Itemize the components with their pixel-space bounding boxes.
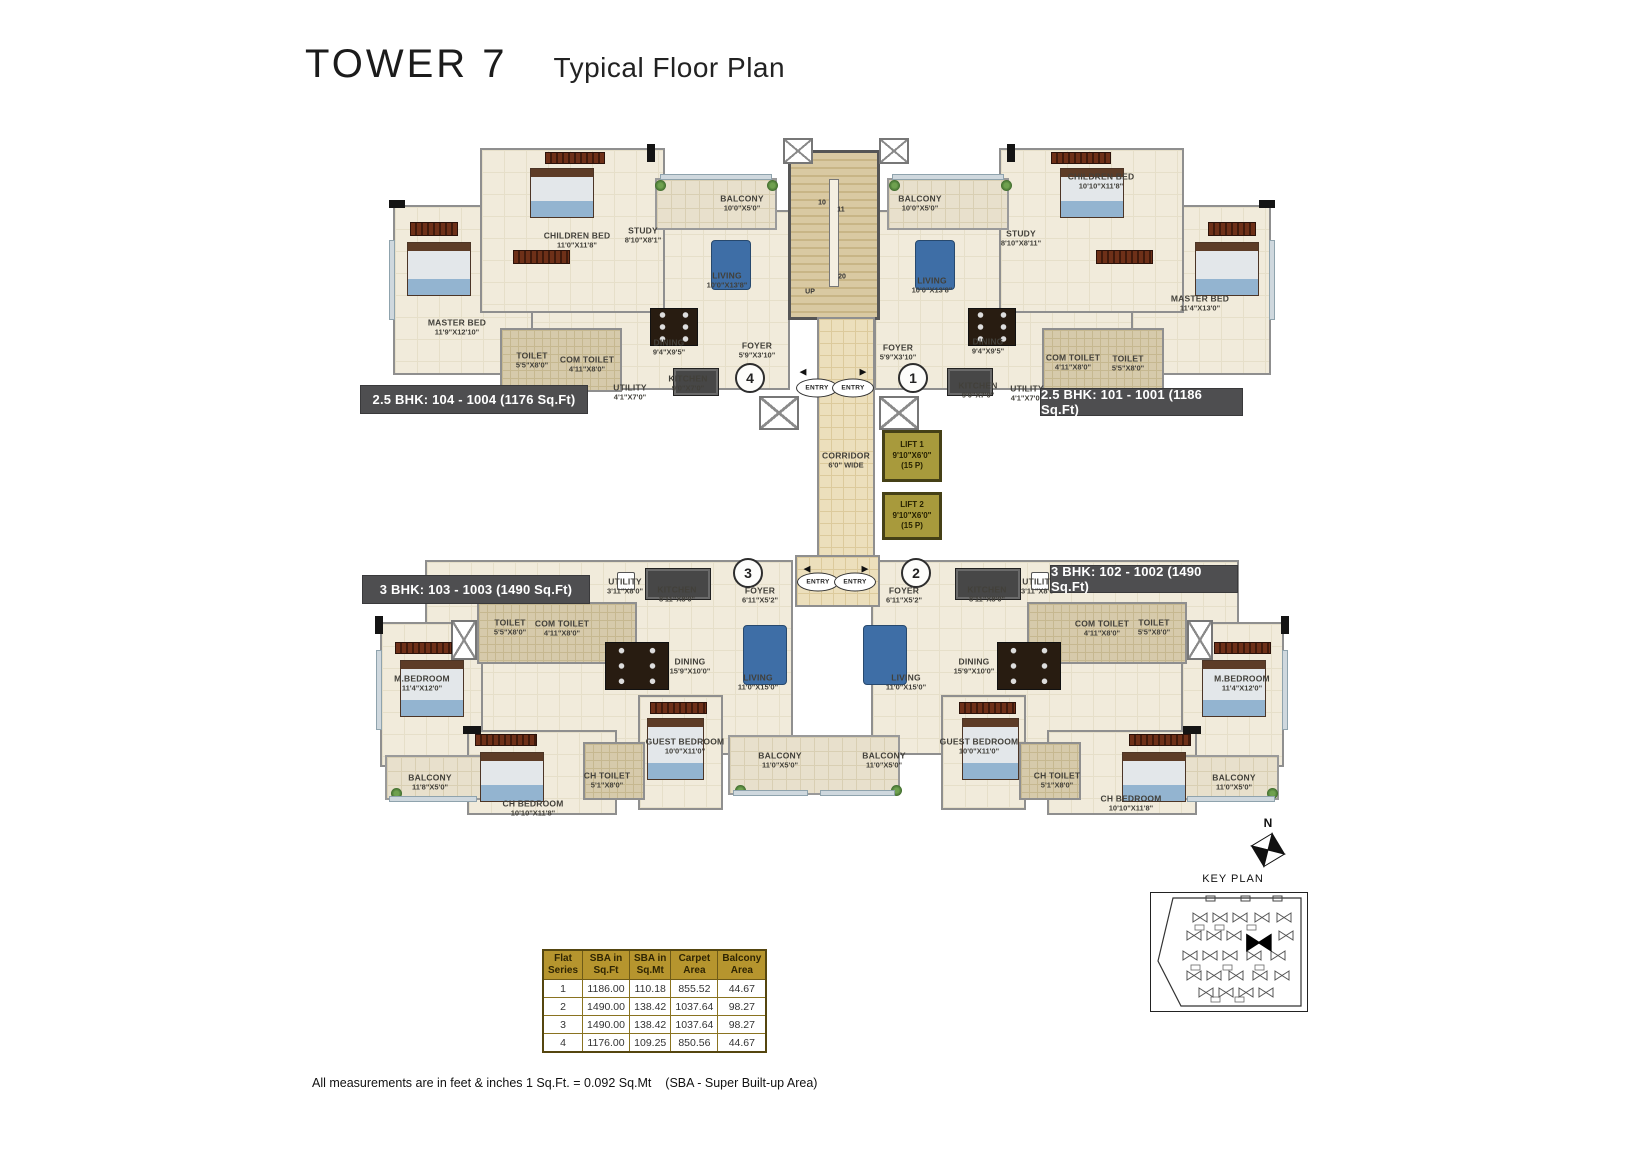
strip-icon	[1051, 152, 1111, 164]
shaft	[879, 138, 909, 164]
shaft	[451, 620, 477, 660]
window	[1187, 796, 1275, 802]
room-name: CHILDREN BED	[544, 231, 611, 241]
room-label: MASTER BED11'9"X12'10"	[428, 318, 486, 337]
room-name: UTILITY	[607, 577, 643, 587]
key-plan	[1150, 892, 1308, 1012]
corridor-label: CORRIDOR 6'0" WIDE	[822, 451, 870, 470]
floor-plan: LIFT 1 9'10"X6'0" (15 P) LIFT 2 9'10"X6'…	[355, 130, 1295, 840]
unit-banner-104: 2.5 BHK: 104 - 1004 (1176 Sq.Ft)	[360, 385, 588, 414]
room-name: KITCHEN	[967, 585, 1006, 595]
room-label: COM TOILET4'11"X8'0"	[1046, 353, 1100, 372]
compass: N	[1240, 816, 1296, 870]
area-table-body: 11186.00110.18855.5244.6721490.00138.421…	[543, 980, 766, 1053]
room-label: BALCONY10'0"X5'0"	[720, 194, 763, 213]
room-name: M.BEDROOM	[394, 674, 450, 684]
room-name: COM TOILET	[1046, 353, 1100, 363]
flat-number-circle: 4	[735, 363, 765, 393]
lift2-capacity: (15 P)	[901, 521, 923, 532]
lift-2: LIFT 2 9'10"X6'0" (15 P)	[882, 492, 942, 540]
stair-label: 11	[837, 207, 844, 214]
room-dims: 11'9"X12'10"	[428, 328, 486, 337]
room-name: STUDY	[625, 226, 662, 236]
room-name: TOILET	[1138, 618, 1170, 628]
room-name: CH BEDROOM	[1100, 794, 1161, 804]
corridor-floor	[817, 317, 875, 579]
column	[389, 200, 405, 208]
shaft	[759, 396, 799, 430]
table-cell: 138.42	[630, 1016, 671, 1034]
room-dims: 10'0"X5'0"	[720, 204, 763, 213]
room-label: KITCHEN9'0"X7'0"	[668, 374, 707, 393]
shaft	[1187, 620, 1213, 660]
table-cell: 1037.64	[671, 1016, 718, 1034]
room-dims: 10'10"X11'8"	[1100, 804, 1161, 813]
room-label: COM TOILET4'11"X8'0"	[560, 355, 614, 374]
bed-icon	[480, 752, 544, 802]
room-label: BALCONY11'0"X5'0"	[862, 751, 905, 770]
room-name: BALCONY	[862, 751, 905, 761]
tower-title: TOWER 7	[305, 42, 508, 87]
key-plan-title: KEY PLAN	[1177, 873, 1289, 885]
table-cell: 98.27	[718, 998, 766, 1016]
room-name: STUDY	[1001, 229, 1041, 239]
room-dims: 11'0"X5'0"	[758, 761, 801, 770]
room-name: DINING	[670, 657, 711, 667]
room-name: GUEST BEDROOM	[940, 737, 1019, 747]
room-name: BALCONY	[1212, 773, 1255, 783]
stair-landing	[829, 179, 839, 287]
room-label: GUEST BEDROOM10'0"X11'0"	[646, 737, 725, 756]
room-name: DINING	[954, 657, 995, 667]
unit-banner-103: 3 BHK: 103 - 1003 (1490 Sq.Ft)	[362, 575, 590, 604]
room-dims: 5'1"X8'0"	[584, 781, 631, 790]
room-dims: 5'9"X3'10"	[880, 353, 917, 362]
stair-label: 20	[838, 274, 846, 281]
room-dims: 10'0"X11'0"	[646, 747, 725, 756]
room-name: CHILDREN BED	[1068, 172, 1135, 182]
stair-label: 10	[818, 200, 826, 207]
lift2-dims: 9'10"X6'0"	[893, 511, 932, 522]
page-title: TOWER 7 Typical Floor Plan	[305, 42, 785, 87]
room-name: FOYER	[880, 343, 917, 353]
room-label: UTILITY3'11"X8'0"	[607, 577, 643, 596]
room-dims: 5'5"X8'0"	[1138, 628, 1170, 637]
room-label: BALCONY10'0"X5'0"	[898, 194, 941, 213]
room-dims: 8'11"X8'0"	[967, 595, 1006, 604]
room-label: DINING9'4"X9'5"	[653, 338, 685, 357]
unit-banner-102: 3 BHK: 102 - 1002 (1490 Sq.Ft)	[1050, 565, 1238, 593]
room-name: CH TOILET	[1034, 771, 1081, 781]
column	[1259, 200, 1275, 208]
room-label: CH TOILET5'1"X8'0"	[1034, 771, 1081, 790]
table-header-cell: CarpetArea	[671, 950, 718, 980]
table-cell: 850.56	[671, 1034, 718, 1053]
room-dims: 4'11"X8'0"	[560, 365, 614, 374]
room-label: FOYER5'9"X3'10"	[739, 341, 776, 360]
room-dims: 10'0"X5'0"	[898, 204, 941, 213]
room-dims: 10'10"X11'8"	[1068, 182, 1135, 191]
room-label: CHILDREN BED11'0"X11'8"	[544, 231, 611, 250]
window	[892, 174, 1004, 180]
room-dims: 6'11"X5'2"	[886, 596, 922, 605]
room-label: CHILDREN BED10'10"X11'8"	[1068, 172, 1135, 191]
room-name: M.BEDROOM	[1214, 674, 1270, 684]
table-cell: 1490.00	[583, 998, 630, 1016]
room-dims: 11'4"X12'0"	[1214, 684, 1270, 693]
room-label: BALCONY11'0"X5'0"	[1212, 773, 1255, 792]
room-name: KITCHEN	[668, 374, 707, 384]
entry-oval: ENTRY	[834, 573, 876, 592]
room-name: COM TOILET	[560, 355, 614, 365]
room-label: FOYER6'11"X5'2"	[886, 586, 922, 605]
table-header-cell: FlatSeries	[543, 950, 583, 980]
entry-arrow-icon: ◀	[800, 367, 807, 378]
room-dims: 4'11"X8'0"	[535, 629, 589, 638]
column	[1183, 726, 1201, 734]
room-label: GUEST BEDROOM10'0"X11'0"	[940, 737, 1019, 756]
corridor-name: CORRIDOR	[822, 451, 870, 461]
flat-number-circle: 1	[898, 363, 928, 393]
room-name: KITCHEN	[958, 381, 997, 391]
column	[1281, 616, 1289, 634]
entry-oval: ENTRY	[832, 379, 874, 398]
room-name: MASTER BED	[428, 318, 486, 328]
room-dims: 9'4"X9'5"	[653, 348, 685, 357]
room-label: LIVING11'0"X15'0"	[886, 673, 926, 692]
table-row: 41176.00109.25850.5644.67	[543, 1034, 766, 1053]
measurement-note: All measurements are in feet & inches 1 …	[312, 1076, 817, 1090]
flat-number-circle: 3	[733, 558, 763, 588]
room-dims: 15'9"X10'0"	[670, 667, 711, 676]
room-name: TOILET	[494, 618, 526, 628]
table-cell: 2	[543, 998, 583, 1016]
room-name: BALCONY	[720, 194, 763, 204]
room-name: LIVING	[886, 673, 926, 683]
bed-icon	[530, 168, 594, 218]
room-dims: 8'10"X8'1"	[625, 236, 662, 245]
plant-icon	[889, 180, 900, 191]
table-cell: 138.42	[630, 998, 671, 1016]
room-label: BALCONY11'8"X5'0"	[408, 773, 451, 792]
table-cell: 110.18	[630, 980, 671, 998]
room-dims: 11'4"X12'0"	[394, 684, 450, 693]
room-label: KITCHEN8'11"X8'0"	[967, 585, 1006, 604]
room-label: TOILET5'5"X8'0"	[516, 351, 548, 370]
strip-icon	[545, 152, 605, 164]
room-label: TOILET5'5"X8'0"	[494, 618, 526, 637]
window	[1282, 650, 1288, 730]
room-dims: 10'10"X11'8"	[502, 809, 563, 818]
room-name: UTILITY	[1010, 384, 1044, 394]
strip-icon	[1129, 734, 1191, 746]
table-row: 21490.00138.421037.6498.27	[543, 998, 766, 1016]
compass-north-label: N	[1240, 816, 1296, 830]
room-label: CH TOILET5'1"X8'0"	[584, 771, 631, 790]
window	[733, 790, 808, 796]
table-cell: 98.27	[718, 1016, 766, 1034]
strip-icon	[1096, 250, 1153, 264]
plant-icon	[1001, 180, 1012, 191]
column	[1007, 144, 1015, 162]
shaft	[879, 396, 919, 430]
table-header-row: FlatSeriesSBA inSq.FtSBA inSq.MtCarpetAr…	[543, 950, 766, 980]
room-dims: 8'11"X8'0"	[657, 595, 696, 604]
strip-icon	[475, 734, 537, 746]
table-cell: 109.25	[630, 1034, 671, 1053]
room-label: DINING9'4"X9'5"	[972, 337, 1004, 356]
lift1-capacity: (15 P)	[901, 461, 923, 472]
lift1-dims: 9'10"X6'0"	[893, 451, 932, 462]
table-cell: 1176.00	[583, 1034, 630, 1053]
room-dims: 9'4"X9'5"	[972, 347, 1004, 356]
room-label: UTILITY4'1"X7'0"	[613, 383, 647, 402]
room-dims: 5'5"X8'0"	[1112, 364, 1144, 373]
room-dims: 4'1"X7'0"	[613, 393, 647, 402]
room-label: LIVING10'0"X13'8"	[912, 276, 953, 295]
room-dims: 9'0"X7'0"	[668, 384, 707, 393]
room-name: DINING	[972, 337, 1004, 347]
strip-icon	[959, 702, 1016, 714]
room-dims: 4'11"X8'0"	[1075, 629, 1129, 638]
room-dims: 11'0"X15'0"	[886, 683, 926, 692]
room-dims: 11'0"X5'0"	[1212, 783, 1255, 792]
room-label: TOILET5'5"X8'0"	[1138, 618, 1170, 637]
table-cell: 44.67	[718, 1034, 766, 1053]
room-dims: 5'1"X8'0"	[1034, 781, 1081, 790]
area-table-head: FlatSeriesSBA inSq.FtSBA inSq.MtCarpetAr…	[543, 950, 766, 980]
room-name: COM TOILET	[535, 619, 589, 629]
dtable-icon	[605, 642, 669, 690]
room-label: FOYER6'11"X5'2"	[742, 586, 778, 605]
room-name: COM TOILET	[1075, 619, 1129, 629]
room-name: UTILITY	[613, 383, 647, 393]
room-dims: 10'0"X13'8"	[707, 281, 748, 290]
room-dims: 5'5"X8'0"	[516, 361, 548, 370]
bed-icon	[1195, 242, 1259, 296]
flat-number-circle: 2	[901, 558, 931, 588]
table-cell: 3	[543, 1016, 583, 1034]
bed-icon	[407, 242, 471, 296]
staircase	[788, 150, 880, 320]
room-label: LIVING11'0"X15'0"	[738, 673, 778, 692]
table-cell: 855.52	[671, 980, 718, 998]
room-dims: 10'0"X11'0"	[940, 747, 1019, 756]
table-cell: 44.67	[718, 980, 766, 998]
room-dims: 11'8"X5'0"	[408, 783, 451, 792]
table-cell: 4	[543, 1034, 583, 1053]
shaft	[783, 138, 813, 164]
room-name: FOYER	[739, 341, 776, 351]
window	[820, 790, 895, 796]
room-name: CH TOILET	[584, 771, 631, 781]
room-name: TOILET	[516, 351, 548, 361]
table-header-cell: SBA inSq.Ft	[583, 950, 630, 980]
room-dims: 4'11"X8'0"	[1046, 363, 1100, 372]
column	[463, 726, 481, 734]
room-label: STUDY8'10"X8'11"	[1001, 229, 1041, 248]
entry-arrow-icon: ◀	[804, 564, 811, 575]
room-label: COM TOILET4'11"X8'0"	[1075, 619, 1129, 638]
window	[389, 796, 477, 802]
table-cell: 1186.00	[583, 980, 630, 998]
column	[647, 144, 655, 162]
room-dims: 11'4"X13'0"	[1171, 304, 1229, 313]
room-label: BALCONY11'0"X5'0"	[758, 751, 801, 770]
lift2-name: LIFT 2	[900, 500, 924, 511]
compass-icon	[1248, 830, 1288, 870]
room-label: STUDY8'10"X8'1"	[625, 226, 662, 245]
room-label: CH BEDROOM10'10"X11'8"	[502, 799, 563, 818]
room-label: KITCHEN9'0"X7'0"	[958, 381, 997, 400]
lift-1: LIFT 1 9'10"X6'0" (15 P)	[882, 430, 942, 482]
table-cell: 1037.64	[671, 998, 718, 1016]
table-row: 31490.00138.421037.6498.27	[543, 1016, 766, 1034]
column	[375, 616, 383, 634]
room-label: M.BEDROOM11'4"X12'0"	[394, 674, 450, 693]
table-header-cell: BalconyArea	[718, 950, 766, 980]
room-name: BALCONY	[898, 194, 941, 204]
room-name: TOILET	[1112, 354, 1144, 364]
table-cell: 1	[543, 980, 583, 998]
room-dims: 4'1"X7'0"	[1010, 394, 1044, 403]
stair-label: UP	[805, 289, 815, 296]
entry-arrow-icon: ▶	[860, 367, 867, 378]
strip-icon	[650, 702, 707, 714]
plant-icon	[767, 180, 778, 191]
room-name: DINING	[653, 338, 685, 348]
strip-icon	[395, 642, 452, 654]
room-dims: 11'0"X5'0"	[862, 761, 905, 770]
room-dims: 5'5"X8'0"	[494, 628, 526, 637]
room-dims: 9'0"X7'0"	[958, 391, 997, 400]
room-label: TOILET5'5"X8'0"	[1112, 354, 1144, 373]
strip-icon	[1214, 642, 1271, 654]
room-name: LIVING	[738, 673, 778, 683]
window	[376, 650, 382, 730]
room-name: KITCHEN	[657, 585, 696, 595]
dtable-icon	[997, 642, 1061, 690]
room-name: GUEST BEDROOM	[646, 737, 725, 747]
room-label: KITCHEN8'11"X8'0"	[657, 585, 696, 604]
room-name: BALCONY	[408, 773, 451, 783]
room-name: MASTER BED	[1171, 294, 1229, 304]
plant-icon	[655, 180, 666, 191]
strip-icon	[1208, 222, 1256, 236]
window	[660, 174, 772, 180]
area-table: FlatSeriesSBA inSq.FtSBA inSq.MtCarpetAr…	[542, 949, 767, 1053]
room-label: DINING15'9"X10'0"	[670, 657, 711, 676]
room-label: M.BEDROOM11'4"X12'0"	[1214, 674, 1270, 693]
room-label: COM TOILET4'11"X8'0"	[535, 619, 589, 638]
room-name: LIVING	[912, 276, 953, 286]
key-plan-sketch	[1151, 893, 1307, 1011]
room-dims: 8'10"X8'11"	[1001, 239, 1041, 248]
room-dims: 15'9"X10'0"	[954, 667, 995, 676]
window	[1269, 240, 1275, 320]
table-header-cell: SBA inSq.Mt	[630, 950, 671, 980]
entry-arrow-icon: ▶	[862, 564, 869, 575]
room-dims: 11'0"X11'8"	[544, 241, 611, 250]
table-row: 11186.00110.18855.5244.67	[543, 980, 766, 998]
room-dims: 5'9"X3'10"	[739, 351, 776, 360]
room-dims: 10'0"X13'8"	[912, 286, 953, 295]
strip-icon	[410, 222, 458, 236]
strip-icon	[513, 250, 570, 264]
room-label: FOYER5'9"X3'10"	[880, 343, 917, 362]
room-dims: 11'0"X15'0"	[738, 683, 778, 692]
room-name: LIVING	[707, 271, 748, 281]
window	[389, 240, 395, 320]
room-label: UTILITY4'1"X7'0"	[1010, 384, 1044, 403]
unit-banner-101: 2.5 BHK: 101 - 1001 (1186 Sq.Ft)	[1040, 388, 1243, 416]
entry-oval: ENTRY	[797, 573, 839, 592]
room-label: MASTER BED11'4"X13'0"	[1171, 294, 1229, 313]
floor-plan-subtitle: Typical Floor Plan	[554, 52, 786, 84]
corridor-dims: 6'0" WIDE	[822, 461, 870, 470]
room-name: CH BEDROOM	[502, 799, 563, 809]
room-dims: 3'11"X8'0"	[607, 587, 643, 596]
lift1-name: LIFT 1	[900, 440, 924, 451]
room-label: DINING15'9"X10'0"	[954, 657, 995, 676]
room-dims: 6'11"X5'2"	[742, 596, 778, 605]
table-cell: 1490.00	[583, 1016, 630, 1034]
room-label: LIVING10'0"X13'8"	[707, 271, 748, 290]
key-plan-tower7-marker	[1247, 935, 1271, 950]
room-label: CH BEDROOM10'10"X11'8"	[1100, 794, 1161, 813]
room-name: BALCONY	[758, 751, 801, 761]
